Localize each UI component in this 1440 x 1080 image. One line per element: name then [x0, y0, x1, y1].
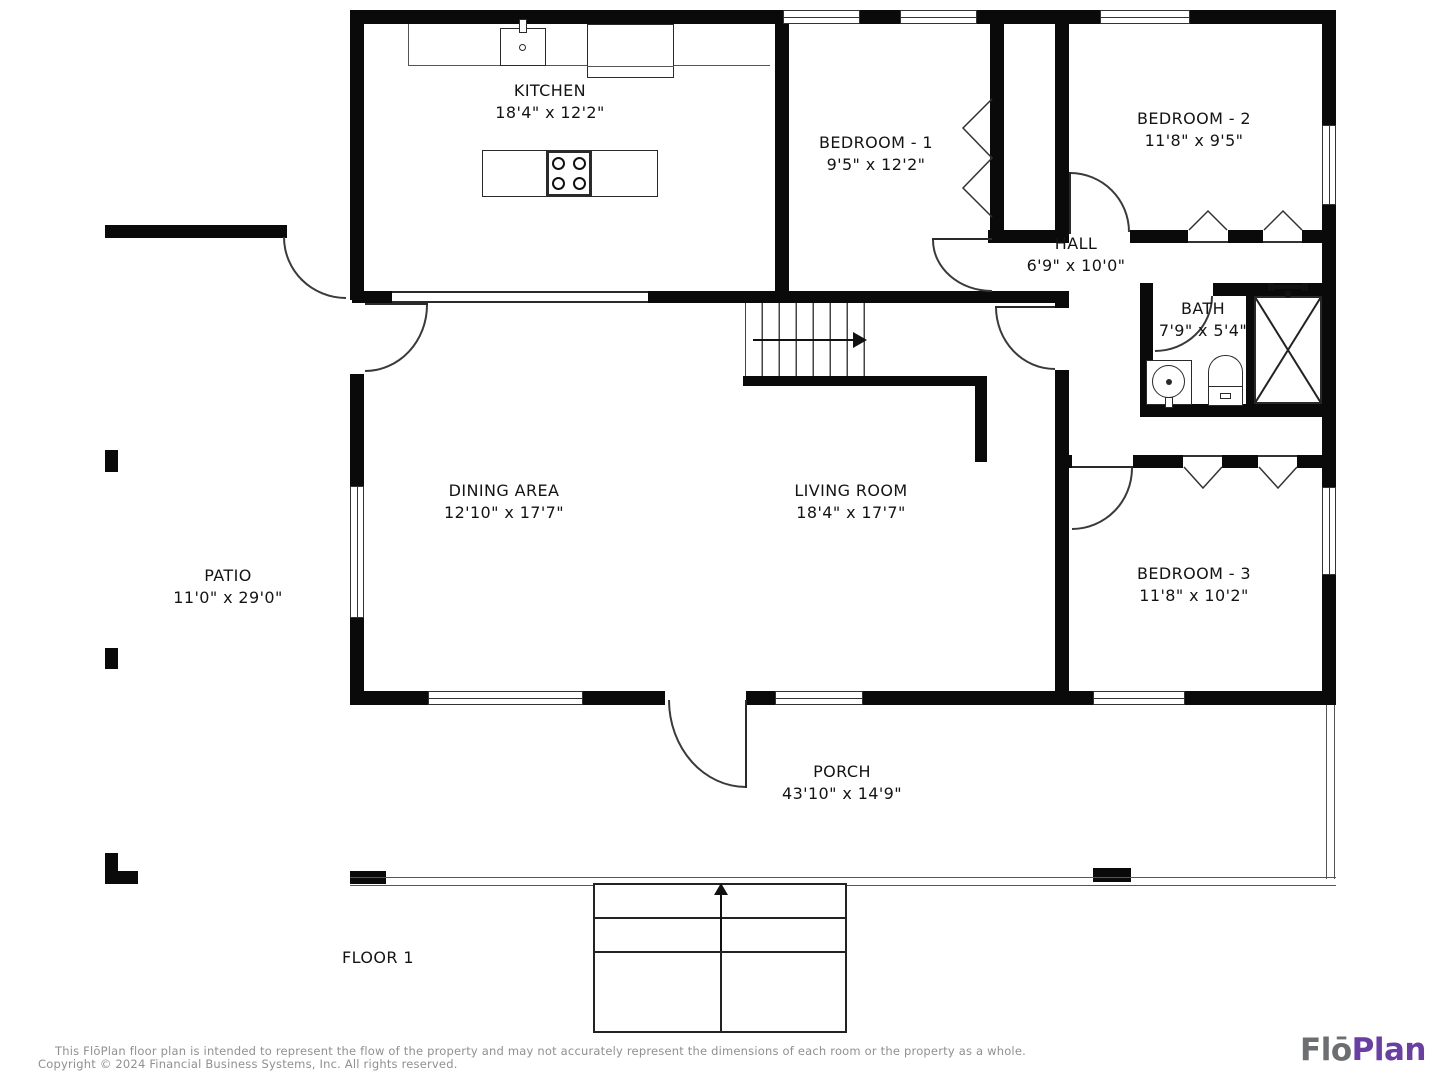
- kitchen-sink-drain-icon: [519, 44, 526, 51]
- room-label-patio: PATIO11'0" x 29'0": [108, 565, 348, 609]
- floplan-logo-flo: Flō: [1300, 1032, 1352, 1068]
- wall: [977, 10, 1100, 24]
- porch-edge: [1326, 705, 1335, 879]
- wall: [1190, 10, 1336, 24]
- closet-doors-icon: [1263, 209, 1303, 231]
- wall: [350, 374, 364, 486]
- wall: [648, 291, 1062, 303]
- wall: [975, 376, 987, 462]
- closet-sill: [1258, 455, 1297, 457]
- wall: [350, 10, 364, 300]
- door-leaf: [365, 303, 428, 305]
- wall: [350, 10, 783, 24]
- window: [1093, 691, 1185, 705]
- door-leaf: [995, 306, 1055, 308]
- window: [1322, 487, 1336, 575]
- window: [900, 10, 977, 24]
- floplan-logo-plan: Plan: [1352, 1032, 1426, 1068]
- window: [350, 486, 364, 618]
- window: [1322, 125, 1336, 205]
- wall: [1055, 24, 1069, 243]
- wall: [1228, 230, 1263, 243]
- disclaimer-text: This FlōPlan floor plan is intended to r…: [55, 1044, 1026, 1058]
- wall: [1322, 575, 1336, 705]
- door-arc: [995, 307, 1055, 370]
- window: [428, 691, 583, 705]
- closet-doors-icon: [1188, 209, 1228, 231]
- room-label-bedroom-2: BEDROOM - 211'8" x 9'5": [1074, 108, 1314, 152]
- floplan-logo: FlōPlan: [1300, 1032, 1426, 1068]
- cased-opening: [392, 291, 648, 303]
- wall: [863, 691, 1093, 705]
- wall: [1322, 10, 1336, 125]
- room-label-bath: BATH7'9" x 5'4": [1123, 298, 1283, 342]
- wall: [1185, 691, 1336, 705]
- wall: [1302, 230, 1322, 243]
- wall: [1055, 455, 1072, 468]
- room-label-bedroom-3: BEDROOM - 311'8" x 10'2": [1074, 563, 1314, 607]
- copyright-text: Copyright © 2024 Financial Business Syst…: [38, 1057, 458, 1071]
- wall: [1055, 468, 1069, 691]
- toilet-bowl: [1208, 355, 1243, 388]
- wall: [1133, 455, 1183, 468]
- kitchen-sink-faucet-icon: [519, 19, 527, 33]
- closet-doors-icon: [1258, 466, 1298, 489]
- wall: [1322, 205, 1336, 487]
- patio-post: [105, 450, 118, 472]
- wall: [1222, 455, 1258, 468]
- patio-post: [105, 648, 118, 669]
- door-arc: [365, 305, 428, 372]
- patio-wall: [105, 225, 287, 238]
- wall: [743, 376, 987, 386]
- toilet-flush-icon: [1220, 393, 1231, 399]
- room-label-kitchen: KITCHEN18'4" x 12'2": [430, 80, 670, 124]
- counter-edge: [408, 24, 409, 66]
- entry-arrow-icon: [714, 883, 728, 895]
- patio-post: [105, 871, 138, 884]
- closet-sill: [1183, 455, 1222, 457]
- bath-sink-drain-icon: [1166, 379, 1172, 385]
- wall: [1055, 370, 1069, 468]
- closet-sill: [1263, 241, 1302, 243]
- door-leaf: [1072, 466, 1133, 468]
- door-arc: [932, 240, 992, 292]
- bath-faucet-icon: [1165, 397, 1173, 408]
- closet-sill: [1188, 241, 1228, 243]
- wall: [583, 691, 665, 705]
- door-leaf: [932, 238, 992, 240]
- wall: [350, 691, 428, 705]
- burner-icon: [552, 157, 565, 170]
- burner-icon: [573, 157, 586, 170]
- wall: [1297, 455, 1322, 468]
- closet-doors-icon: [1183, 466, 1223, 489]
- window: [783, 10, 860, 24]
- stairs-up-arrow-icon: [853, 332, 867, 348]
- room-label-bedroom-1: BEDROOM - 19'5" x 12'2": [756, 132, 996, 176]
- door-arc: [1070, 172, 1130, 232]
- wall: [746, 691, 775, 705]
- cooktop: [546, 150, 592, 197]
- refrigerator: [587, 24, 674, 78]
- door-leaf: [1069, 172, 1071, 234]
- window: [1100, 10, 1190, 24]
- window: [775, 691, 863, 705]
- room-label-porch: PORCH43'10" x 14'9": [722, 761, 962, 805]
- wall: [860, 10, 900, 24]
- wall: [352, 291, 392, 303]
- room-label-dining-area: DINING AREA12'10" x 17'7": [384, 480, 624, 524]
- room-label-living-room: LIVING ROOM18'4" x 17'7": [731, 480, 971, 524]
- door-arc: [283, 237, 346, 299]
- door-arc: [1072, 468, 1133, 530]
- refrigerator-edge: [587, 66, 674, 67]
- floor-label: FLOOR 1: [318, 947, 438, 969]
- room-label-hall: HALL6'9" x 10'0": [996, 233, 1156, 277]
- burner-icon: [573, 177, 586, 190]
- stairs-arrow-shaft: [753, 339, 853, 341]
- wall: [1055, 291, 1069, 308]
- floor-plan: KITCHEN18'4" x 12'2" BEDROOM - 19'5" x 1…: [0, 0, 1440, 1080]
- burner-icon: [552, 177, 565, 190]
- entry-arrow-shaft: [720, 893, 722, 951]
- shower-head-icon: [1268, 283, 1308, 299]
